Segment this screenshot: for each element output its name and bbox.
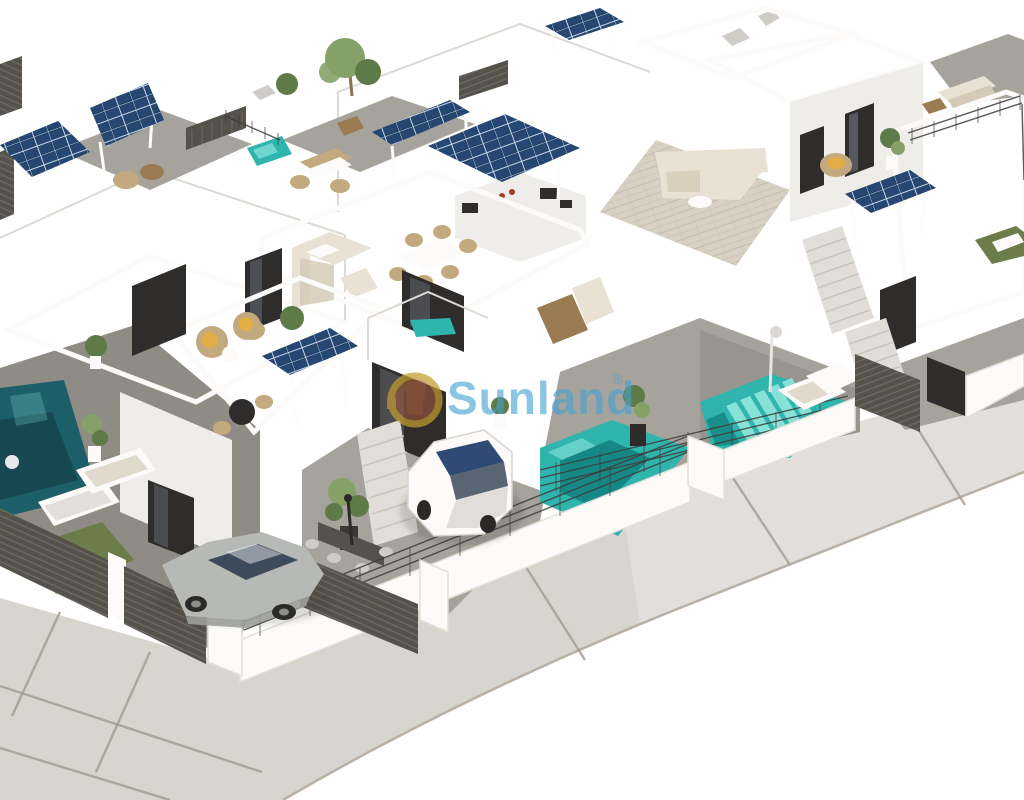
fence-left-pillar — [108, 552, 126, 622]
stairs-right — [802, 226, 874, 334]
slat-fence-top-left-1 — [0, 56, 22, 116]
tree-large — [319, 38, 381, 96]
slat-screen-top-center — [459, 60, 508, 100]
villa-top-right — [372, 8, 1024, 334]
watermark-registered-mark: ® — [612, 371, 623, 387]
tree-small — [276, 73, 298, 95]
tiled-roof-back-right — [643, 8, 853, 78]
door-left-front-glint — [154, 484, 168, 548]
door-right-1 — [800, 126, 824, 194]
sun-loungers-mid-terrace — [537, 277, 614, 344]
solar-pergola-top-center — [545, 8, 624, 52]
slat-fence-top-left-2 — [0, 146, 14, 220]
lap-pool-sliver — [410, 318, 456, 337]
sunland-logo — [387, 376, 439, 424]
lawn-right — [975, 226, 1024, 264]
corner-sofa-terrace — [600, 140, 790, 266]
villa-render: Sunland ® — [0, 0, 1024, 800]
render-canvas: Sunland ® — [0, 0, 1024, 800]
armchair-yellow-right — [820, 153, 852, 177]
watermark-text: Sunland — [447, 372, 635, 424]
driveway-gate-pillar — [420, 560, 448, 632]
watermark: Sunland ® — [387, 371, 635, 424]
